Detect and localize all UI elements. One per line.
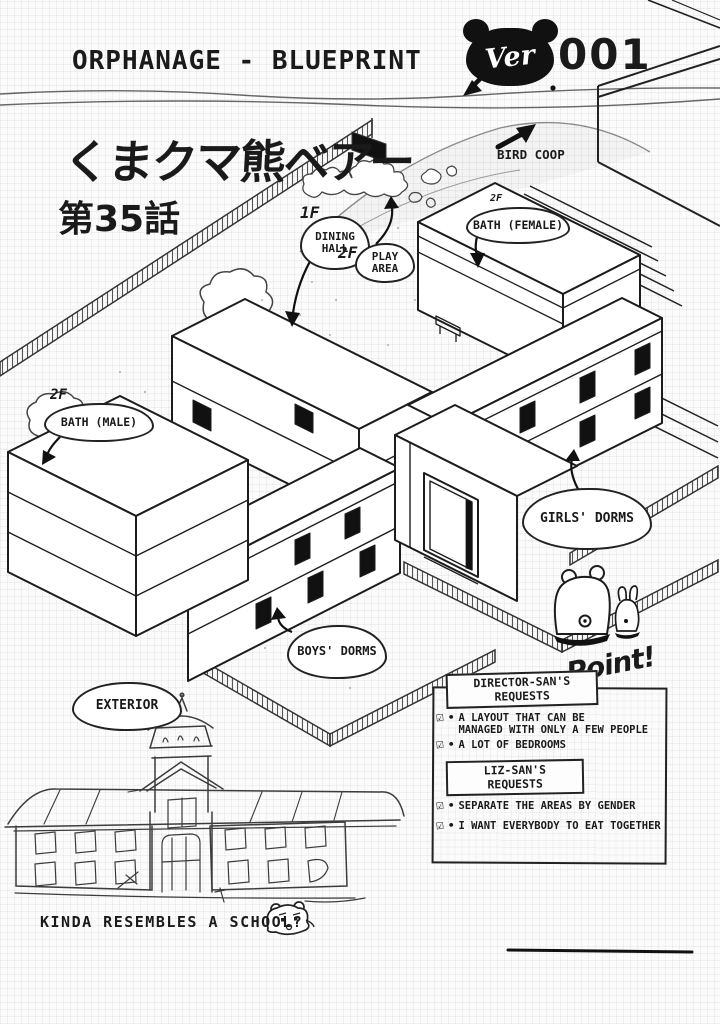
episode-number: 第35話 xyxy=(58,190,180,242)
label-bath-male: BATH (MALE) xyxy=(44,403,154,442)
bullet-icon: • xyxy=(448,739,455,752)
floor-tag-bath-male: 2F xyxy=(50,387,67,403)
bullet-icon: • xyxy=(448,712,455,725)
request-item: ☑ • A LOT OF BEDROOMS xyxy=(436,739,666,752)
request-item: ☑ • I WANT EVERYBODY TO EAT TOGETHER xyxy=(436,820,666,833)
checkbox-icon: ☑ xyxy=(435,799,444,813)
manga-blueprint-page: { "page": { "header": { "title": "ORPHAN… xyxy=(0,0,720,1024)
checkbox-icon: ☑ xyxy=(435,711,444,725)
bottom-rule-line xyxy=(508,950,692,952)
badge-period-dot xyxy=(550,85,555,90)
label-girls-dorms: GIRLS' DORMS xyxy=(522,488,652,550)
label-boys-dorms: BOYS' DORMS xyxy=(287,625,387,679)
floor-tag-play: 2F xyxy=(338,243,357,262)
exterior-sketch xyxy=(5,693,404,902)
version-bear-badge-icon: Ver xyxy=(466,28,554,86)
bear-figure xyxy=(554,566,610,646)
director-requests-heading: DIRECTOR-SAN'S REQUESTS xyxy=(446,670,599,709)
version-prefix: Ver xyxy=(484,39,537,75)
checkbox-icon: ☑ xyxy=(435,819,444,833)
liz-requests-heading: LIZ-SAN'S REQUESTS xyxy=(446,759,585,796)
animal-figures xyxy=(554,566,640,646)
label-bird-coop: BIRD COOP xyxy=(497,147,565,162)
floor-tag-bath-female: 2F xyxy=(490,193,502,204)
page-title: ORPHANAGE - BLUEPRINT xyxy=(72,46,422,76)
bullet-icon: • xyxy=(448,820,455,833)
label-play-area: PLAYAREA xyxy=(355,243,415,283)
bunny-figure xyxy=(615,586,640,639)
checkbox-icon: ☑ xyxy=(435,738,444,752)
bottom-caption: KINDA RESEMBLES A SCHOOL? xyxy=(40,913,303,931)
bullet-icon: • xyxy=(448,800,455,813)
label-exterior: EXTERIOR xyxy=(72,682,182,731)
label-bath-female: BATH (FEMALE) xyxy=(466,207,570,244)
request-item: ☑ • A LAYOUT THAT CAN BEMANAGED WITH ONL… xyxy=(436,712,666,736)
series-title: くまクマ熊ベアー xyxy=(62,126,415,192)
version-number: 001 xyxy=(558,30,652,79)
request-item: ☑ • SEPARATE THE AREAS BY GENDER xyxy=(436,800,666,813)
